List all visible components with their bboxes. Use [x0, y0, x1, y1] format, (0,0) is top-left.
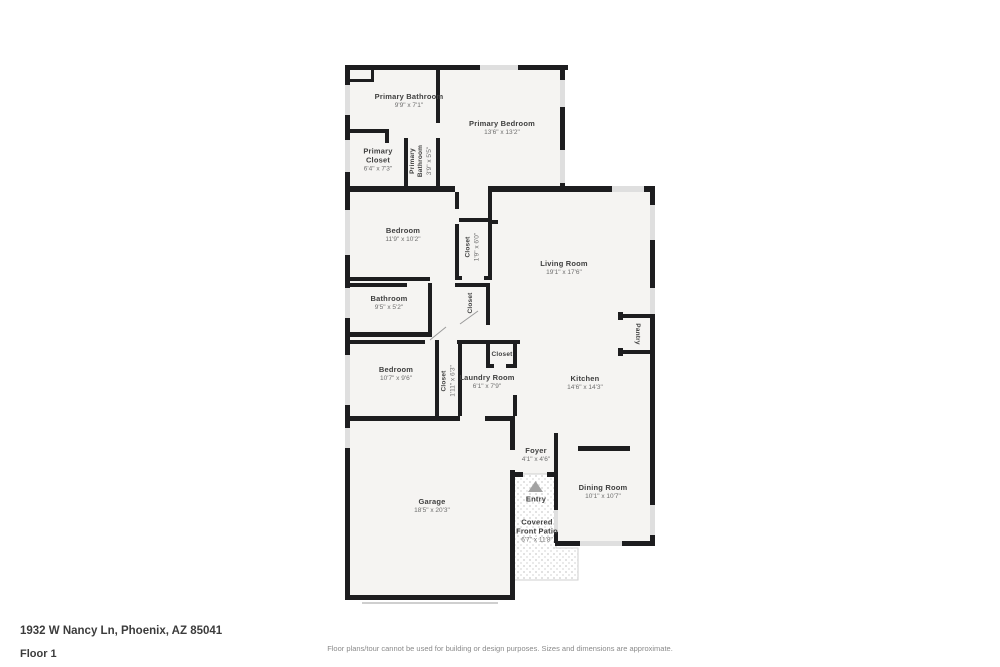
kitchen-island: [578, 446, 630, 451]
floor-label: Floor 1: [20, 648, 57, 660]
floorplan-page: Primary Bathroom 9'9" x 7'1" Primary Bed…: [0, 0, 1000, 667]
disclaimer: Floor plans/tour cannot be used for buil…: [327, 644, 673, 653]
address: 1932 W Nancy Ln, Phoenix, AZ 85041: [20, 625, 222, 637]
floorplan-drawing: [0, 0, 1000, 667]
garage-door-line: [362, 602, 498, 604]
